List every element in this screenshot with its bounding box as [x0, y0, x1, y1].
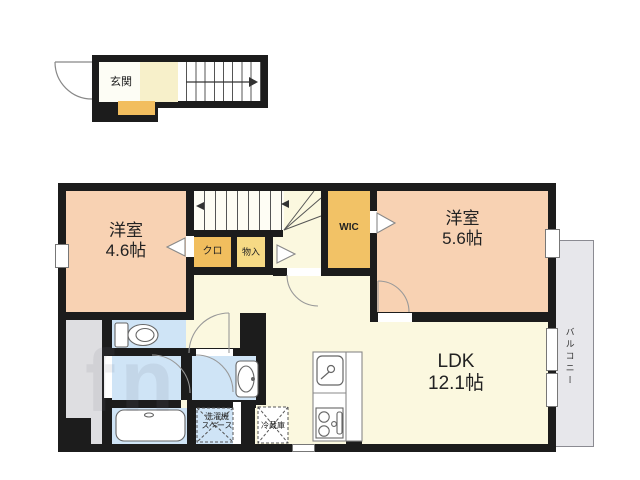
gas-stove-icon — [316, 408, 343, 438]
refrigerator-label: 冷蔵庫 — [258, 421, 288, 430]
staircase-winder-icon — [284, 191, 321, 230]
stairs-arrow-icon — [196, 202, 204, 210]
balcony-label: バルコニー — [564, 302, 575, 412]
laundry-label: 洗濯機 スペース — [194, 412, 240, 431]
laundry-line1: 洗濯機 — [194, 412, 240, 421]
wic-label: WIC — [328, 222, 370, 234]
bedroom2-name: 洋室 — [377, 209, 548, 229]
toilet-door-arc — [189, 313, 229, 353]
closet-label: クロ — [194, 246, 231, 258]
stairs-arrow2-icon — [281, 200, 289, 208]
bedroom2-door-arc — [378, 281, 409, 312]
storage-label: 物入 — [237, 247, 265, 258]
bedroom1-name: 洋室 — [66, 221, 186, 241]
bedroom1-size: 4.6帖 — [66, 241, 186, 261]
ldk-name: LDK — [376, 351, 536, 373]
ldk-size: 12.1帖 — [376, 373, 536, 395]
kitchen-sink-icon — [317, 356, 343, 385]
bedroom2-label: 洋室 5.6帖 — [377, 209, 548, 249]
bathtub-icon — [116, 410, 185, 441]
toilet-icon — [115, 323, 158, 347]
washroom-left-door-arc — [152, 355, 190, 393]
washroom-right-door-arc — [196, 355, 233, 392]
bedroom2-size: 5.6帖 — [377, 229, 548, 249]
laundry-line2: スペース — [194, 421, 240, 430]
bedroom1-label: 洋室 4.6帖 — [66, 221, 186, 261]
entrance-door-icon — [55, 62, 92, 99]
washbasin-icon — [236, 361, 258, 397]
stairs-up-arrow-icon — [186, 77, 258, 87]
floor-plan: 玄関 洋室 4.6帖 洋室 5.6帖 LDK 12.1帖 クロ 物入 WIC 洗… — [0, 0, 640, 480]
hall-door-arc — [287, 275, 318, 306]
hall-doorway-chevron — [277, 245, 295, 263]
ldk-label: LDK 12.1帖 — [376, 351, 536, 396]
entrance-label: 玄関 — [99, 76, 143, 89]
